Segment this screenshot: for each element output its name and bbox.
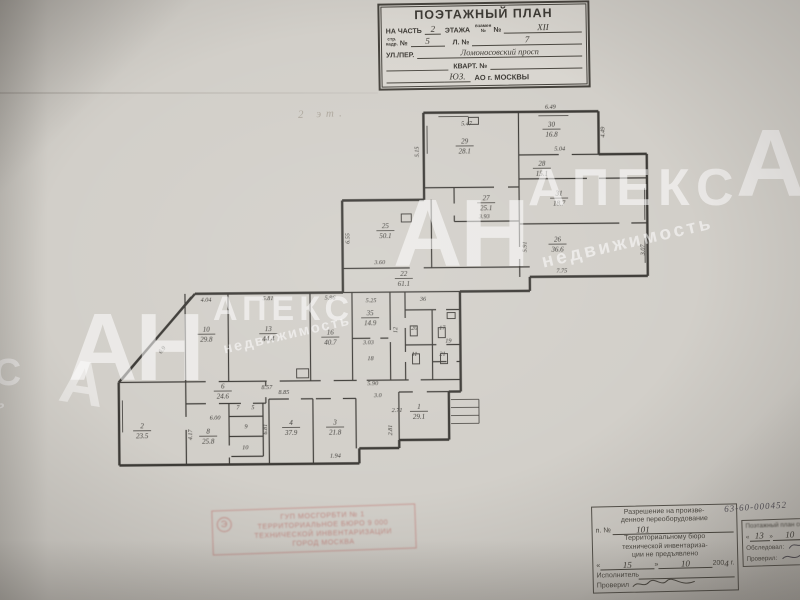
room-number: 28 (538, 160, 546, 168)
kvart-label: КВАРТ. № (448, 63, 490, 71)
dimension-label: 5.96 (325, 295, 337, 302)
permit-date-year: 200 (712, 559, 724, 567)
dimension-label: 5.47 (461, 120, 473, 127)
room-number: 11 (412, 351, 418, 358)
room-number: 10 (203, 326, 211, 334)
interior-wall (454, 221, 519, 222)
room-number: 36 (419, 296, 427, 303)
room-number: 5 (251, 404, 254, 411)
dimension-label: 6.55 (344, 233, 351, 244)
exterior-wall (460, 291, 530, 292)
interior-wall (352, 292, 353, 380)
room-area: 61.1 (398, 280, 410, 288)
interior-wall (185, 294, 186, 465)
sheet-value: 7 (472, 33, 582, 46)
str-value: 5 (411, 36, 445, 48)
survey-checked-signature (779, 549, 800, 563)
dimension-label: 3.03 (362, 339, 374, 346)
plumbing-fixture (401, 214, 411, 222)
room-area: 29.1 (413, 413, 425, 421)
room-number: 17 (439, 325, 446, 332)
room-number: 3 (332, 419, 337, 427)
room-number: 4 (289, 419, 293, 427)
okrug-value: ЮЗ. (444, 71, 470, 82)
room-area: 25.1 (480, 204, 492, 212)
exterior-wall (342, 200, 424, 201)
dimension-label: 6.81 (262, 424, 269, 435)
exterior-wall (342, 201, 343, 293)
interior-wall (343, 291, 460, 292)
str-no-label: № (400, 40, 411, 47)
dimension-label: 6.49 (545, 104, 556, 111)
room-area: 36.6 (550, 246, 564, 254)
dimension-label: 5.90 (367, 380, 379, 387)
permit-date-month: 10 (658, 559, 712, 569)
room-number: 2 (140, 422, 144, 430)
interior-wall (310, 293, 311, 381)
dimension-label: 3.0 (373, 392, 383, 399)
dimension-label: 7.75 (556, 268, 567, 275)
room-number: 31 (555, 190, 563, 198)
room-number: 10 (242, 444, 249, 451)
exterior-wall (647, 154, 648, 276)
room-number: 18 (367, 355, 374, 362)
dimension-label: 6.9 (157, 345, 167, 355)
dimension-label: 5.91 (521, 241, 528, 252)
dimension-label: 2.71 (392, 407, 403, 414)
interior-wall (431, 200, 432, 268)
room-area: 14.9 (364, 319, 377, 327)
dimension-label: 1.94 (330, 453, 341, 460)
street-label: УЛ./ПЕР. (386, 52, 417, 59)
room-area: 40.7 (324, 339, 337, 347)
permit-date-day: 15 (600, 560, 654, 570)
floor-no-label: № (493, 27, 504, 34)
room-number: 26 (554, 236, 562, 244)
room-area: 16.8 (545, 131, 558, 139)
dimension-label: 3.07 (640, 244, 647, 257)
room-area: 29.8 (200, 336, 213, 344)
sheet-label: Л. № (445, 39, 473, 46)
permit-stamp: Разрешение на произве- денное переоборуд… (591, 503, 739, 593)
room-area: 23.5 (136, 432, 149, 440)
permit-checked-label: Проверил (597, 582, 629, 591)
permit-doc-no-label: № (603, 527, 611, 535)
exterior-wall (460, 291, 461, 391)
room-number: 30 (547, 121, 556, 129)
exterior-wall (530, 276, 648, 277)
dimension-label: 8.85 (278, 389, 289, 396)
plumbing-fixture (297, 369, 309, 378)
room-area: 25.8 (202, 438, 215, 446)
room-number: 20 (411, 325, 418, 332)
room-area: 21.8 (329, 429, 342, 437)
interior-wall (519, 187, 520, 277)
interior-wall (343, 267, 530, 269)
room-number: 13 (265, 325, 273, 333)
okrug-label: АО г. МОСКВЫ (470, 72, 532, 82)
permit-doc-label: п. (596, 528, 602, 536)
exterior-wall (423, 111, 598, 113)
survey-line1: Поэтажный план составлен (745, 519, 800, 530)
room-area: 24.6 (217, 392, 230, 400)
room-number: 8 (206, 428, 210, 436)
title-block-inner: ПОЭТАЖНЫЙ ПЛАН НА ЧАСТЬ 2 ЭТАЖА взамен №… (380, 3, 587, 87)
dimension-label: 3.60 (373, 259, 386, 266)
survey-stamp: Поэтажный план составлен « 13 » 10 Обсле… (741, 516, 800, 567)
room-area: 50.1 (379, 232, 391, 240)
room-area: 15.1 (536, 170, 548, 178)
permit-date-year2: 4 (724, 559, 729, 567)
room-area: 44.4 (262, 335, 275, 343)
room-number: 12 (392, 326, 399, 333)
interior-wall (313, 399, 314, 464)
okrug-blank (387, 82, 445, 84)
room-number: 29 (461, 137, 469, 145)
room-number: 16 (327, 329, 335, 337)
room-area: 28.1 (459, 147, 471, 155)
room-number: 21 (439, 351, 445, 358)
dimension-label: 5.15 (414, 146, 421, 157)
dimension-label: 5.04 (554, 146, 565, 153)
room-number: 22 (400, 270, 408, 278)
room-area: 18.7 (553, 200, 566, 208)
survey-checked-label: Проверил: (746, 555, 777, 564)
exterior-wall (119, 463, 359, 465)
dimension-label: 3.93 (478, 213, 490, 220)
red-stamp-badge: Э (217, 517, 233, 533)
room-number: 9 (244, 423, 248, 430)
room-number: 7 (236, 404, 240, 411)
dimension-label: 4.17 (187, 428, 194, 440)
title-block: ПОЭТАЖНЫЙ ПЛАН НА ЧАСТЬ 2 ЭТАЖА взамен №… (377, 0, 590, 90)
exterior-wall (195, 292, 343, 293)
part-value: 2 (425, 24, 441, 35)
floor-label: ЭТАЖА (441, 27, 473, 35)
photographed-floor-plan-document: 2928.13016.82815.13118.72725.12636.62550… (0, 0, 800, 600)
room-area: 37.9 (284, 429, 298, 437)
str-sub-stack: стр. кадр. (386, 38, 400, 48)
exterior-wall (119, 382, 120, 465)
interior-wall (518, 112, 519, 187)
window-line (148, 325, 168, 348)
interior-wall (228, 294, 229, 382)
dimension-label: 8.57 (261, 384, 273, 391)
room-number: 25 (382, 222, 390, 230)
dimension-label: 4.49 (599, 127, 606, 138)
room-number: 27 (483, 194, 491, 202)
interior-wall (405, 292, 406, 380)
dimension-label: 4.04 (201, 297, 212, 304)
floor-value: XII (504, 21, 582, 33)
permit-signature (629, 576, 699, 590)
interior-wall (519, 178, 647, 179)
room-number: 1 (417, 403, 421, 411)
plumbing-fixture (447, 313, 455, 319)
survey-date-day: 13 (749, 532, 769, 541)
room-number: 6 (221, 383, 225, 391)
dimension-label: 2.81 (387, 425, 394, 436)
pencil-note: 2 эт. (298, 107, 347, 121)
room-number: 19 (445, 338, 452, 345)
room-number: 35 (366, 309, 375, 317)
exterior-wall (423, 113, 424, 200)
part-label: НА ЧАСТЬ (386, 28, 425, 36)
dimension-label: 6.00 (210, 415, 222, 422)
red-bti-stamp: Э ГУП МОСГОРБТИ № 1 ТЕРРИТОРИАЛЬНОЕ БЮРО… (211, 503, 416, 555)
dimension-label: 5.25 (366, 297, 377, 304)
dimension-label: 5.81 (263, 295, 274, 302)
floor-sub-stack: взамен № (473, 24, 493, 34)
